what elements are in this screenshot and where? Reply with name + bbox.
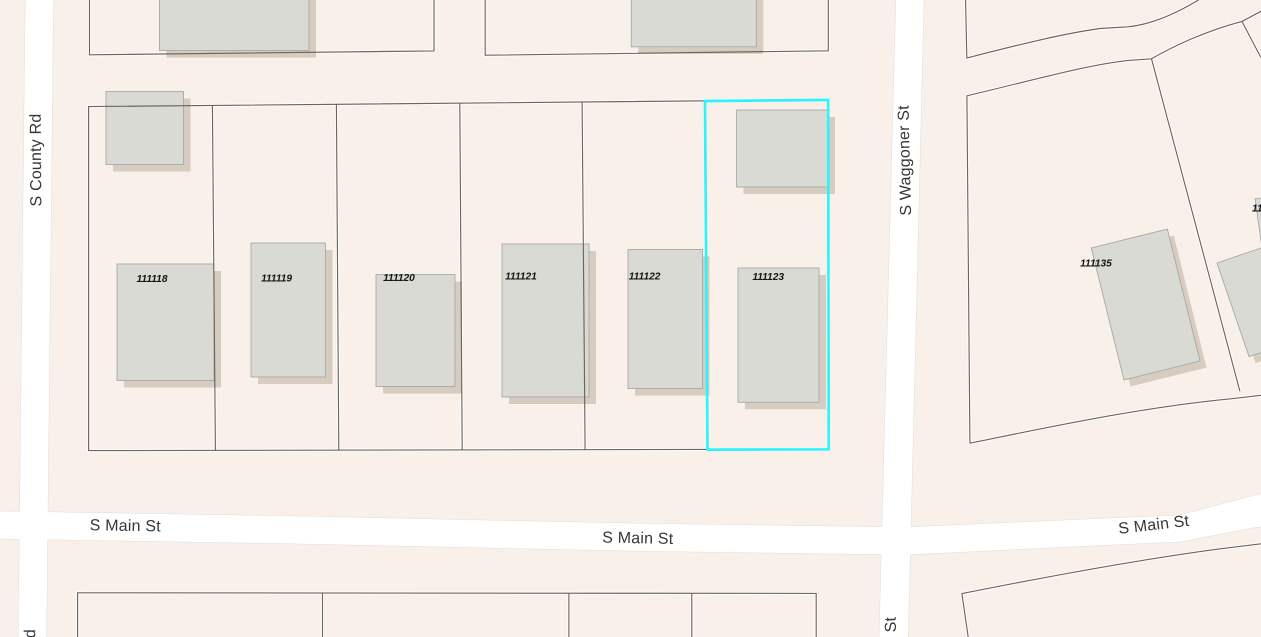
- svg-text:S County Rd: S County Rd: [28, 114, 46, 207]
- svg-text:S Main St: S Main St: [90, 517, 162, 535]
- svg-text:111118: 111118: [137, 274, 168, 285]
- svg-text:S Waggoner St: S Waggoner St: [883, 616, 903, 637]
- svg-text:111119: 111119: [261, 274, 292, 285]
- svg-text:S Main St: S Main St: [602, 529, 674, 547]
- svg-text:111120: 111120: [383, 273, 415, 284]
- svg-text:111121: 111121: [505, 272, 537, 283]
- svg-text:S County Rd: S County Rd: [22, 629, 40, 637]
- svg-text:111123: 111123: [752, 272, 784, 283]
- svg-text:S Waggoner St: S Waggoner St: [895, 105, 915, 216]
- svg-text:111135: 111135: [1080, 258, 1112, 269]
- svg-text:111134: 111134: [1252, 204, 1261, 215]
- svg-text:111122: 111122: [629, 272, 661, 283]
